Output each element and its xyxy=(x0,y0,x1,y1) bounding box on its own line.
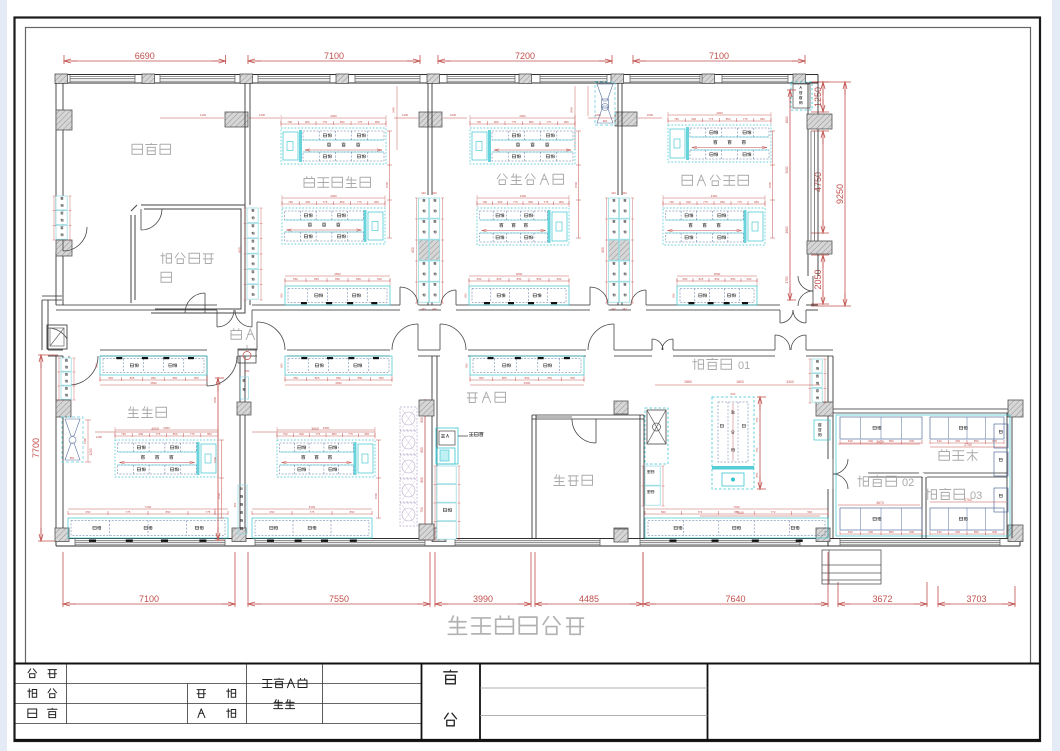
svg-text:1800: 1800 xyxy=(785,116,789,123)
svg-text:2900: 2900 xyxy=(570,107,574,113)
svg-text:950: 950 xyxy=(375,120,380,124)
svg-text:9250: 9250 xyxy=(835,184,845,204)
svg-text:790: 790 xyxy=(287,120,292,124)
svg-text:850: 850 xyxy=(547,376,552,380)
svg-text:1000: 1000 xyxy=(595,113,602,117)
svg-text:650: 650 xyxy=(270,510,275,514)
svg-text:560: 560 xyxy=(807,510,812,514)
svg-text:600: 600 xyxy=(280,293,284,298)
svg-text:850: 850 xyxy=(755,472,759,477)
svg-text:1800: 1800 xyxy=(785,226,789,233)
svg-text:800: 800 xyxy=(992,439,997,443)
svg-text:775: 775 xyxy=(323,200,328,204)
svg-text:775: 775 xyxy=(315,432,320,436)
svg-text:900: 900 xyxy=(299,432,304,436)
svg-text:500: 500 xyxy=(379,376,384,380)
svg-text:825: 825 xyxy=(497,277,502,281)
svg-text:600: 600 xyxy=(280,363,284,368)
svg-text:4360: 4360 xyxy=(716,111,723,115)
svg-text:4360: 4360 xyxy=(711,194,718,198)
svg-text:650: 650 xyxy=(479,376,484,380)
svg-text:600: 600 xyxy=(411,247,415,253)
svg-text:4590: 4590 xyxy=(524,381,531,385)
svg-text:3672: 3672 xyxy=(872,594,892,604)
svg-text:850: 850 xyxy=(889,439,894,443)
svg-text:7100: 7100 xyxy=(324,51,344,61)
svg-text:3000: 3000 xyxy=(785,166,789,173)
svg-text:3703: 3703 xyxy=(966,594,986,604)
svg-text:900: 900 xyxy=(494,120,499,124)
svg-text:850: 850 xyxy=(356,277,361,281)
svg-text:3600: 3600 xyxy=(311,427,319,431)
svg-text:440: 440 xyxy=(432,307,437,311)
svg-text:850: 850 xyxy=(173,376,178,380)
svg-text:800: 800 xyxy=(909,439,914,443)
svg-text:5100: 5100 xyxy=(309,505,316,509)
svg-text:7550: 7550 xyxy=(329,594,349,604)
svg-text:790: 790 xyxy=(476,120,481,124)
svg-text:600: 600 xyxy=(465,363,469,368)
svg-text:660: 660 xyxy=(868,439,873,443)
svg-text:3690: 3690 xyxy=(516,272,523,276)
svg-text:1500: 1500 xyxy=(574,181,578,188)
svg-text:650: 650 xyxy=(683,277,688,281)
svg-text:1500: 1500 xyxy=(647,113,654,117)
svg-text:1400: 1400 xyxy=(259,113,266,117)
svg-text:440: 440 xyxy=(622,191,627,195)
svg-text:7040: 7040 xyxy=(733,505,740,509)
svg-text:850: 850 xyxy=(537,277,542,281)
svg-text:1800: 1800 xyxy=(736,380,744,384)
svg-text:850: 850 xyxy=(726,117,731,121)
svg-text:750: 750 xyxy=(755,417,759,422)
svg-text:775: 775 xyxy=(126,510,131,514)
svg-text:790: 790 xyxy=(482,200,487,204)
svg-text:800: 800 xyxy=(992,530,997,534)
svg-text:2880: 2880 xyxy=(684,380,692,384)
svg-text:600: 600 xyxy=(672,293,676,298)
svg-text:950: 950 xyxy=(364,432,369,436)
svg-text:03: 03 xyxy=(970,490,982,502)
svg-text:790: 790 xyxy=(669,200,674,204)
svg-text:950: 950 xyxy=(564,120,569,124)
svg-text:660: 660 xyxy=(868,530,873,534)
svg-text:600: 600 xyxy=(238,247,242,253)
svg-text:660: 660 xyxy=(955,439,960,443)
svg-text:825: 825 xyxy=(502,376,507,380)
svg-text:775: 775 xyxy=(546,120,551,124)
svg-text:440: 440 xyxy=(421,307,426,311)
svg-text:500: 500 xyxy=(570,376,575,380)
svg-text:6690: 6690 xyxy=(135,51,155,61)
svg-text:1500: 1500 xyxy=(374,492,378,499)
svg-text:850: 850 xyxy=(336,376,341,380)
svg-text:500: 500 xyxy=(557,277,562,281)
svg-text:850: 850 xyxy=(974,530,979,534)
svg-text:850: 850 xyxy=(70,456,75,460)
svg-text:2500: 2500 xyxy=(213,397,217,403)
svg-text:775: 775 xyxy=(357,200,362,204)
svg-text:1400: 1400 xyxy=(200,113,207,117)
svg-text:4360: 4360 xyxy=(330,114,337,118)
svg-text:950: 950 xyxy=(754,200,759,204)
svg-text:660: 660 xyxy=(955,530,960,534)
svg-text:850: 850 xyxy=(350,510,355,514)
svg-text:850: 850 xyxy=(332,432,337,436)
svg-text:7100: 7100 xyxy=(145,505,152,509)
svg-text:775: 775 xyxy=(310,510,315,514)
svg-text:600: 600 xyxy=(731,392,736,396)
svg-text:600: 600 xyxy=(601,247,605,253)
svg-text:7200: 7200 xyxy=(515,51,535,61)
svg-text:850: 850 xyxy=(720,200,725,204)
svg-text:7100: 7100 xyxy=(709,51,729,61)
svg-text:775: 775 xyxy=(357,120,362,124)
svg-text:775: 775 xyxy=(511,120,516,124)
svg-text:900: 900 xyxy=(686,200,691,204)
svg-text:600: 600 xyxy=(95,363,99,368)
svg-text:850: 850 xyxy=(340,200,345,204)
svg-text:7640: 7640 xyxy=(725,594,745,604)
svg-text:900: 900 xyxy=(498,200,503,204)
svg-text:850: 850 xyxy=(529,120,534,124)
svg-text:1280: 1280 xyxy=(83,438,87,444)
svg-text:850: 850 xyxy=(528,200,533,204)
svg-text:775: 775 xyxy=(513,200,518,204)
svg-text:850: 850 xyxy=(173,432,178,436)
svg-text:7040: 7040 xyxy=(736,511,744,515)
svg-text:850: 850 xyxy=(974,439,979,443)
svg-text:775: 775 xyxy=(156,432,161,436)
svg-text:500: 500 xyxy=(747,277,752,281)
svg-text:540: 540 xyxy=(848,530,853,534)
svg-text:790: 790 xyxy=(121,432,126,436)
svg-text:4360: 4360 xyxy=(323,426,330,430)
svg-text:800: 800 xyxy=(420,477,424,483)
svg-text:1500: 1500 xyxy=(768,181,772,188)
svg-text:7100: 7100 xyxy=(139,594,159,604)
svg-text:1280: 1280 xyxy=(96,435,103,439)
svg-text:4000: 4000 xyxy=(151,427,159,431)
svg-text:650: 650 xyxy=(108,376,113,380)
svg-text:950: 950 xyxy=(760,117,765,121)
svg-text:772: 772 xyxy=(698,510,703,514)
svg-text:850: 850 xyxy=(151,376,156,380)
svg-text:800: 800 xyxy=(909,530,914,534)
svg-text:850: 850 xyxy=(525,376,530,380)
svg-text:850: 850 xyxy=(166,510,171,514)
svg-text:540: 540 xyxy=(848,439,853,443)
svg-text:3690: 3690 xyxy=(150,381,157,385)
svg-text:4360: 4360 xyxy=(330,194,337,198)
svg-text:900: 900 xyxy=(305,120,310,124)
svg-text:4360: 4360 xyxy=(519,114,526,118)
svg-text:772: 772 xyxy=(771,510,776,514)
svg-text:775: 775 xyxy=(709,117,714,121)
svg-text:440: 440 xyxy=(432,191,437,195)
svg-text:440: 440 xyxy=(421,191,426,195)
svg-text:650: 650 xyxy=(293,376,298,380)
svg-text:850: 850 xyxy=(340,120,345,124)
svg-text:440: 440 xyxy=(611,307,616,311)
svg-text:1750: 1750 xyxy=(785,276,789,283)
svg-text:850: 850 xyxy=(731,277,736,281)
svg-text:775: 775 xyxy=(322,120,327,124)
svg-text:4360: 4360 xyxy=(163,426,170,430)
svg-text:775: 775 xyxy=(544,200,549,204)
svg-text:3690: 3690 xyxy=(334,272,341,276)
svg-text:540: 540 xyxy=(937,530,942,534)
svg-text:3400: 3400 xyxy=(786,380,794,384)
svg-text:440: 440 xyxy=(611,191,616,195)
svg-text:560: 560 xyxy=(661,510,666,514)
svg-text:825: 825 xyxy=(314,277,319,281)
svg-text:750: 750 xyxy=(420,507,424,513)
svg-text:850: 850 xyxy=(335,277,340,281)
svg-text:2700: 2700 xyxy=(964,498,972,502)
svg-text:500: 500 xyxy=(377,277,382,281)
svg-text:1400: 1400 xyxy=(402,113,409,117)
svg-text:2400: 2400 xyxy=(392,107,396,113)
svg-text:650: 650 xyxy=(86,510,91,514)
svg-text:3670: 3670 xyxy=(876,501,884,505)
svg-text:950: 950 xyxy=(559,200,564,204)
svg-text:4485: 4485 xyxy=(579,594,599,604)
svg-text:850: 850 xyxy=(358,376,363,380)
svg-text:3990: 3990 xyxy=(473,594,493,604)
svg-text:775: 775 xyxy=(206,510,211,514)
svg-text:900: 900 xyxy=(138,432,143,436)
svg-text:850: 850 xyxy=(715,277,720,281)
svg-text:3690: 3690 xyxy=(335,381,342,385)
svg-text:825: 825 xyxy=(315,376,320,380)
svg-text:850: 850 xyxy=(517,277,522,281)
svg-text:3690: 3690 xyxy=(714,272,721,276)
svg-text:650: 650 xyxy=(293,277,298,281)
svg-text:950: 950 xyxy=(207,432,212,436)
svg-text:3670: 3670 xyxy=(876,440,884,444)
svg-text:900: 900 xyxy=(691,117,696,121)
svg-text:600: 600 xyxy=(233,502,237,507)
svg-text:790: 790 xyxy=(674,117,679,121)
svg-text:1000: 1000 xyxy=(450,113,457,117)
svg-text:2700: 2700 xyxy=(964,443,972,447)
svg-text:680: 680 xyxy=(245,369,250,373)
svg-text:1500: 1500 xyxy=(385,181,389,188)
svg-text:900: 900 xyxy=(305,200,310,204)
svg-text:800: 800 xyxy=(420,447,424,453)
svg-text:01: 01 xyxy=(738,360,750,372)
svg-text:650: 650 xyxy=(477,277,482,281)
svg-text:775: 775 xyxy=(190,432,195,436)
svg-text:775: 775 xyxy=(703,200,708,204)
svg-text:950: 950 xyxy=(374,200,379,204)
svg-text:600: 600 xyxy=(464,293,468,298)
svg-text:1500: 1500 xyxy=(213,457,217,463)
svg-text:02: 02 xyxy=(902,477,914,489)
svg-text:4360: 4360 xyxy=(520,194,527,198)
svg-text:775: 775 xyxy=(348,432,353,436)
svg-text:500: 500 xyxy=(194,376,199,380)
svg-text:1290: 1290 xyxy=(89,448,93,455)
svg-text:800: 800 xyxy=(603,119,608,123)
svg-text:440: 440 xyxy=(622,307,627,311)
svg-text:7700: 7700 xyxy=(31,438,41,458)
svg-text:750: 750 xyxy=(755,447,759,452)
svg-text:1815: 1815 xyxy=(213,509,217,515)
svg-text:790: 790 xyxy=(288,200,293,204)
svg-text:540: 540 xyxy=(937,439,942,443)
svg-text:775: 775 xyxy=(743,117,748,121)
svg-text:825: 825 xyxy=(130,376,135,380)
svg-text:800: 800 xyxy=(420,417,424,423)
svg-text:790: 790 xyxy=(283,432,288,436)
svg-text:825: 825 xyxy=(699,277,704,281)
svg-text:850: 850 xyxy=(889,530,894,534)
svg-text:775: 775 xyxy=(737,200,742,204)
